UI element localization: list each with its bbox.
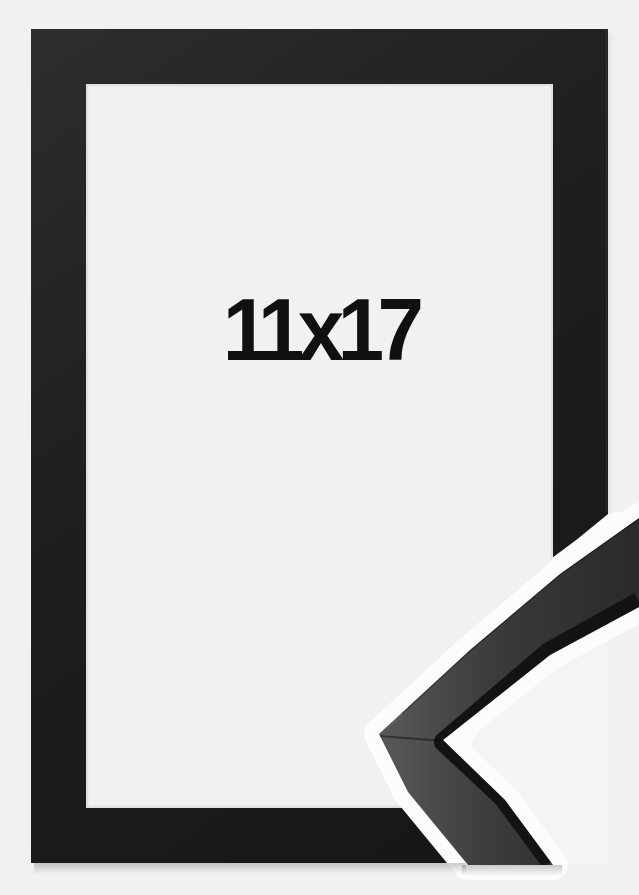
frame-right-shadow bbox=[608, 33, 614, 513]
product-photo: 11x17 bbox=[0, 0, 639, 895]
size-label: 11x17 bbox=[223, 281, 421, 379]
frame-drop-shadow bbox=[34, 863, 466, 874]
sample-drop-shadow bbox=[462, 865, 562, 876]
frame-product-image: 11x17 bbox=[0, 0, 639, 895]
